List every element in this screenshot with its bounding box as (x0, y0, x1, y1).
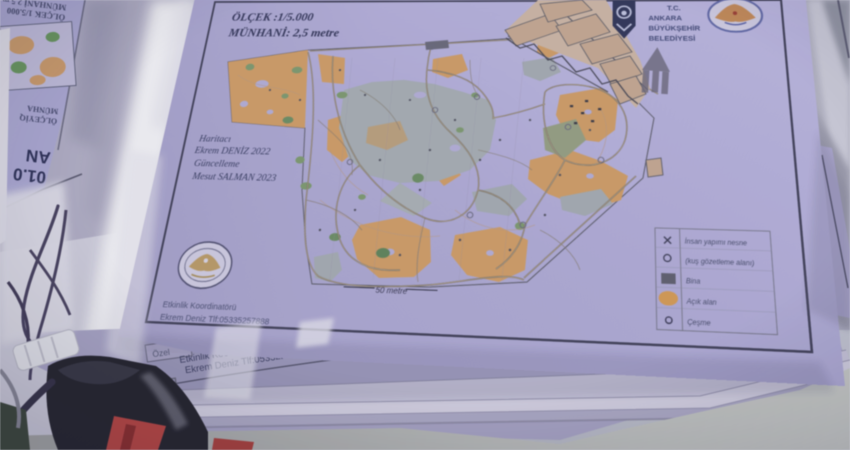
svg-text:AN: AN (25, 146, 52, 168)
svg-text:Çeşme: Çeşme (687, 319, 711, 328)
svg-text:Ekrem DENİZ 2022: Ekrem DENİZ 2022 (193, 145, 271, 157)
svg-text:Bina: Bina (686, 278, 701, 287)
svg-text:ANKARA: ANKARA (648, 15, 682, 22)
svg-text:T.C.: T.C. (667, 5, 681, 12)
svg-text:50 metre: 50 metre (375, 286, 408, 297)
svg-text:MÜNHANİ: 2,5 metre: MÜNHANİ: 2,5 metre (226, 26, 340, 39)
svg-text:Güncelleme: Güncelleme (193, 158, 241, 169)
svg-text:BELEDİYESİ: BELEDİYESİ (649, 33, 696, 43)
svg-text:ÖLÇEK :1/5.000: ÖLÇEK :1/5.000 (231, 11, 315, 24)
svg-text:Açık alan: Açık alan (685, 298, 717, 308)
svg-text:Mesut SALMAN 2023: Mesut SALMAN 2023 (190, 171, 277, 183)
svg-text:01.0: 01.0 (12, 164, 47, 187)
svg-text:BÜYÜKŞEHİR: BÜYÜKŞEHİR (648, 23, 700, 33)
svg-text:Haritacı: Haritacı (197, 134, 232, 145)
